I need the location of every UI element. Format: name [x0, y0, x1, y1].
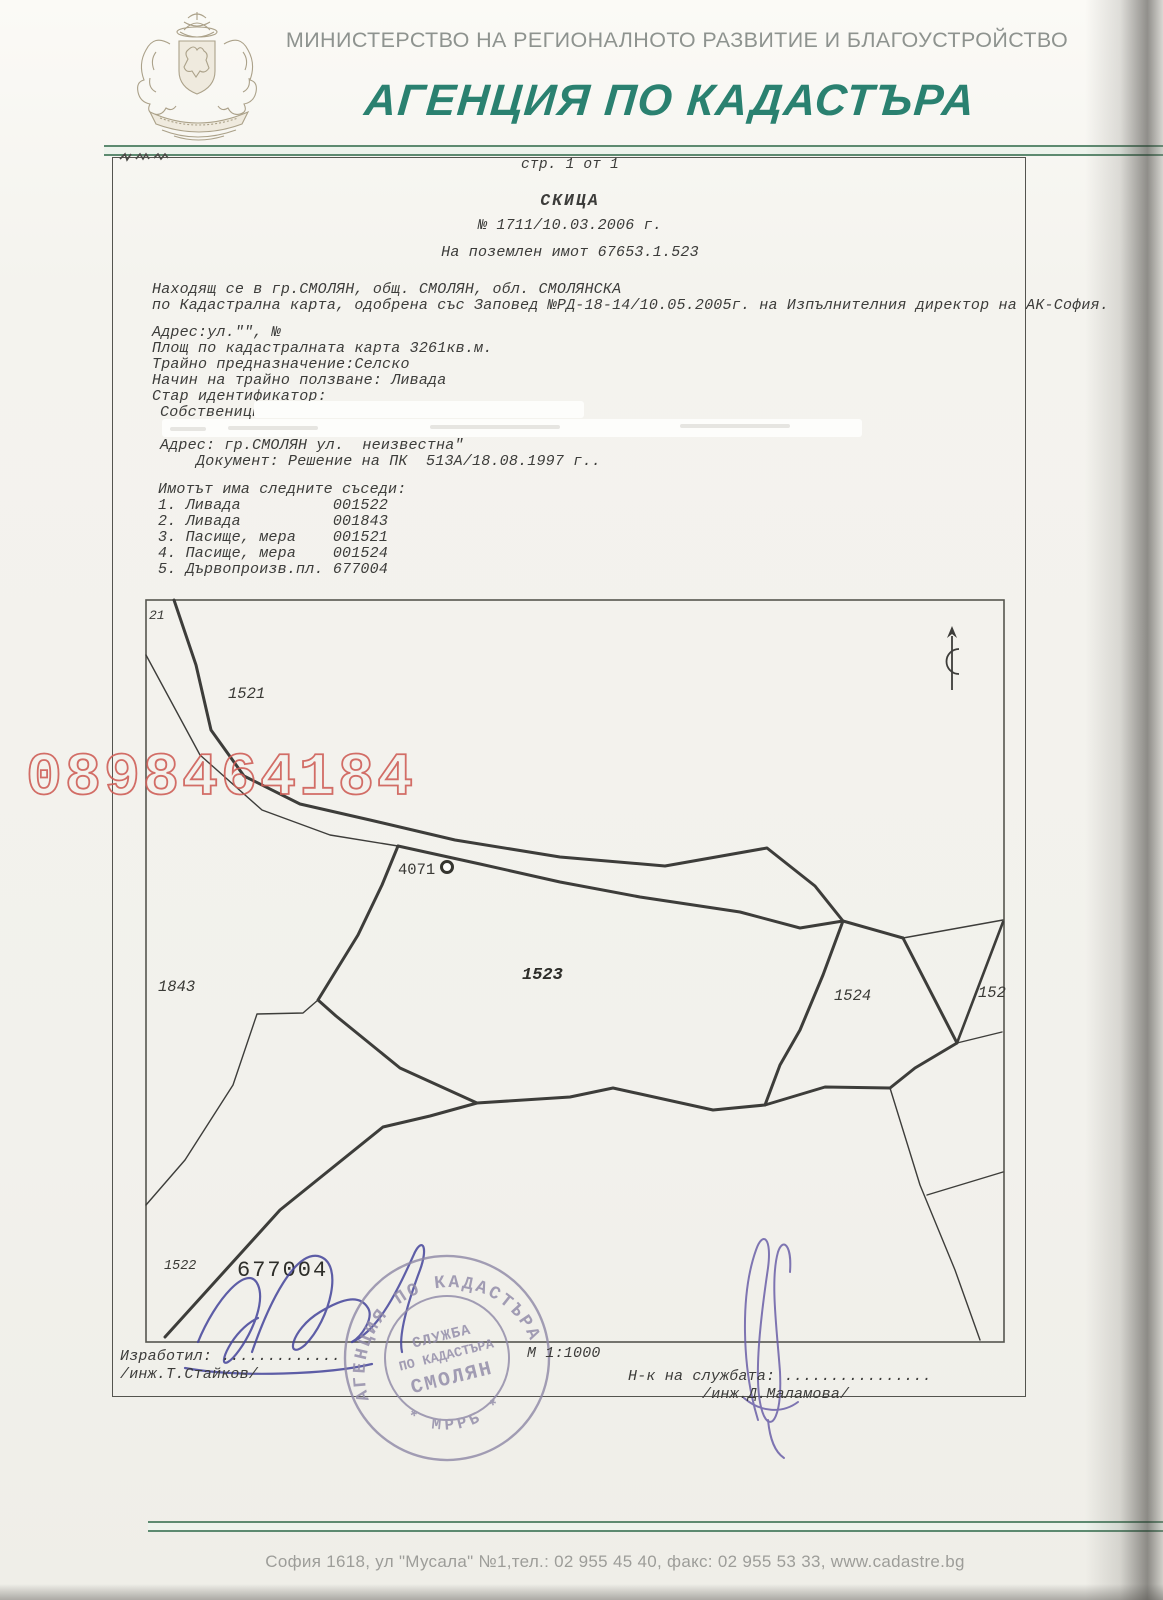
map-frame: [146, 600, 1004, 1342]
parcel-label-1523: 1523: [522, 966, 563, 985]
prepared-by-label: Изработил: .............: [120, 1348, 341, 1365]
prepared-by-name: /инж.Т.Стайков/: [120, 1366, 258, 1383]
signature-chief: [744, 1239, 798, 1458]
parcel-label-152-clipped: 152: [978, 984, 1006, 1002]
parcel-label-1843: 1843: [158, 978, 195, 996]
parcel-label-1522: 1522: [164, 1259, 196, 1274]
geodetic-point-marker: [442, 862, 453, 873]
footer-contact-line: София 1618, ул "Мусала" №1,тел.: 02 955 …: [200, 1552, 1030, 1572]
page-edge-shadow-bottom: [0, 1584, 1163, 1600]
parcel-label-1524: 1524: [834, 987, 871, 1005]
chief-label: Н-к на службата: ................: [628, 1368, 932, 1385]
parcel-label-21: 21: [149, 608, 165, 623]
point-label-4071: 4071: [398, 861, 435, 879]
watermark-phone: 0898464184: [26, 745, 416, 813]
north-arrow-icon: [947, 626, 960, 690]
chief-name: /инж.Д.Маламова/: [702, 1386, 849, 1403]
scale-label: М 1:1000: [527, 1345, 601, 1362]
scanned-cadastral-sketch-page: МИНИСТЕРСТВО НА РЕГИОНАЛНОТО РАЗВИТИЕ И …: [0, 0, 1163, 1600]
page-edge-shadow-right: [1085, 0, 1163, 1600]
parcel-label-1521: 1521: [228, 685, 265, 703]
